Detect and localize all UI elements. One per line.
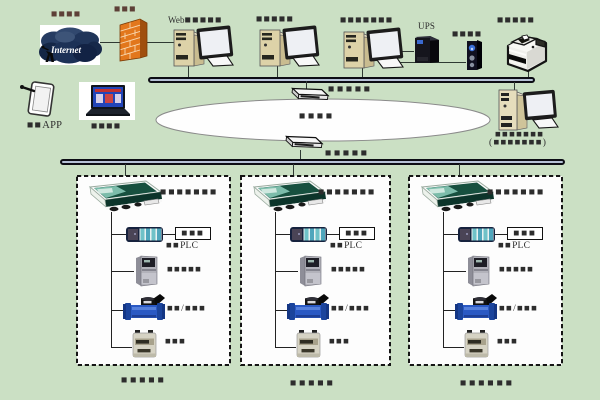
svg-text:Internet: Internet [50,45,82,55]
